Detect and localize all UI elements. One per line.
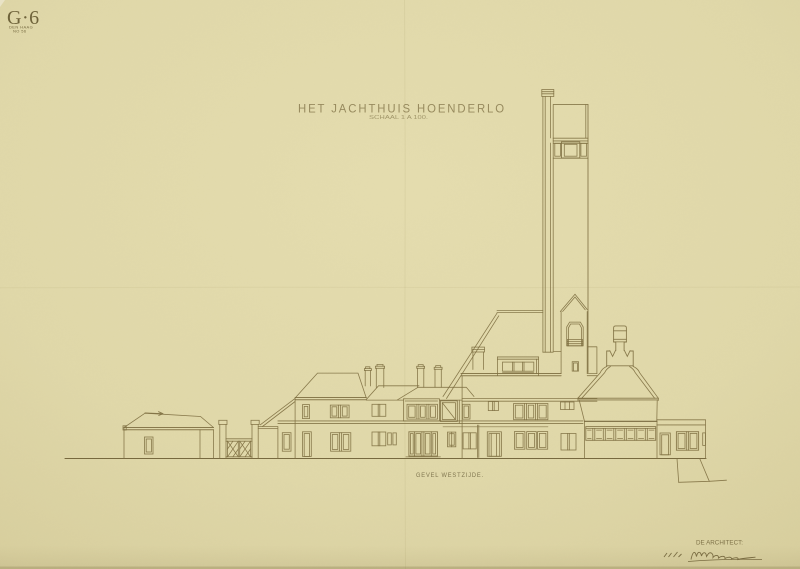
svg-text:DE ARCHITECT:: DE ARCHITECT: <box>696 540 743 547</box>
svg-text:SCHAAL 1 A 100.: SCHAAL 1 A 100. <box>369 115 429 121</box>
svg-text:GEVEL WESTZIJDE.: GEVEL WESTZIJDE. <box>416 472 484 479</box>
svg-text:NO 56: NO 56 <box>13 29 27 34</box>
svg-text:HET JACHTHUIS HOENDERLO: HET JACHTHUIS HOENDERLO <box>298 102 506 116</box>
